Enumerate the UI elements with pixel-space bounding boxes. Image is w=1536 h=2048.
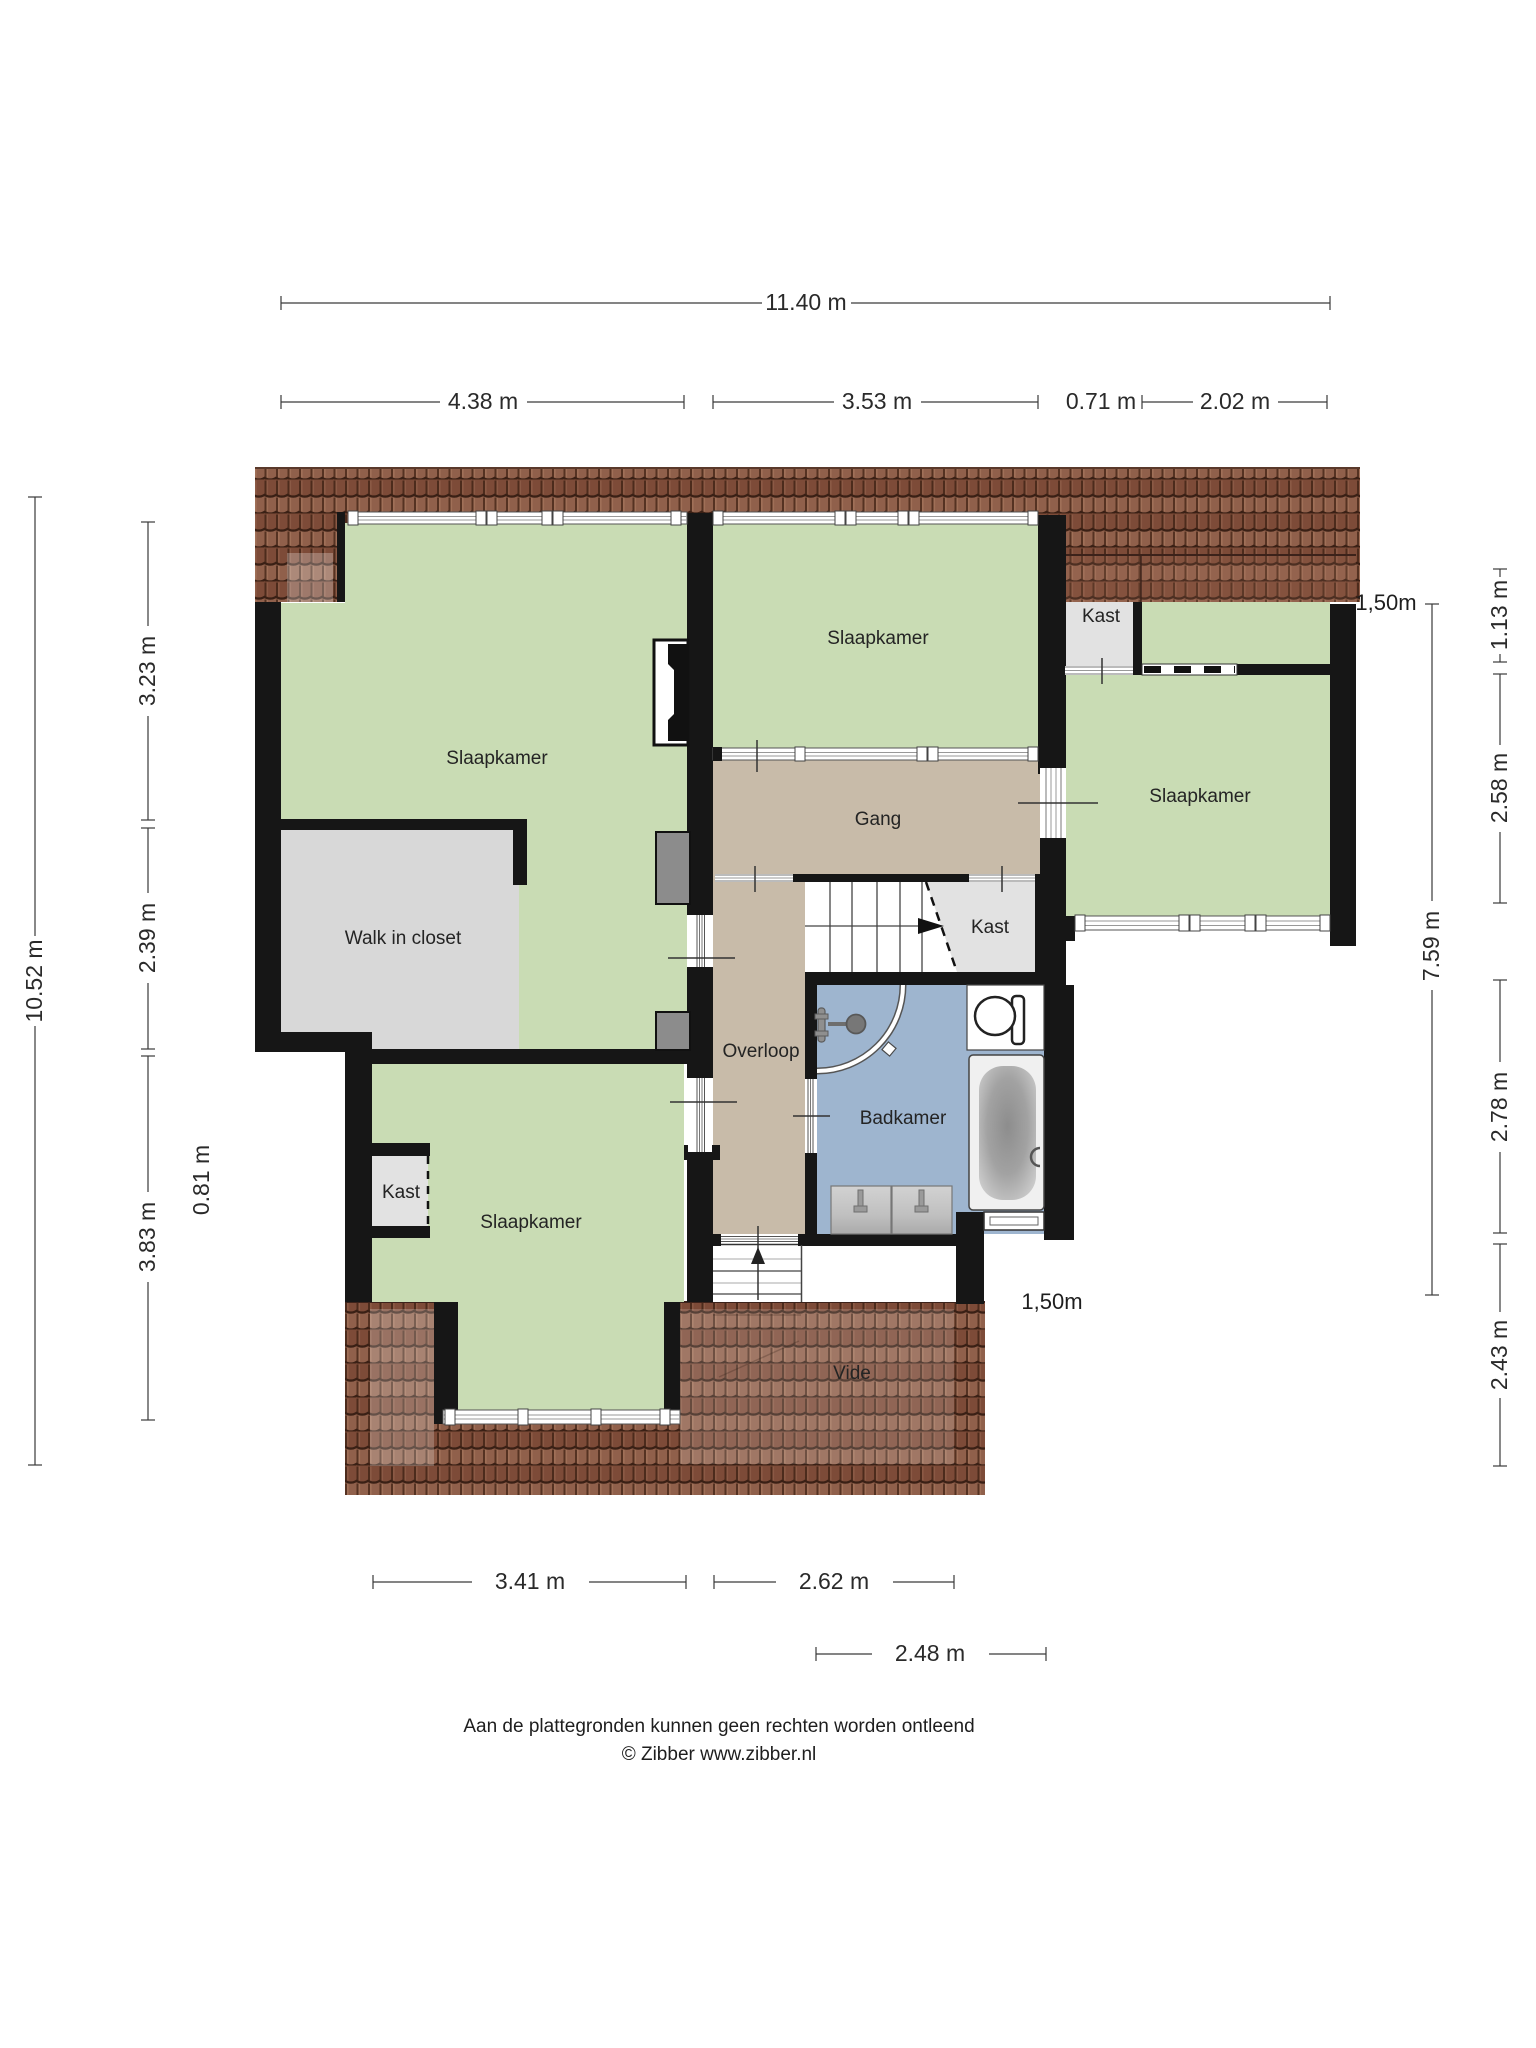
svg-text:1,50m: 1,50m xyxy=(1355,590,1416,615)
svg-text:2.39 m: 2.39 m xyxy=(134,903,160,973)
svg-text:7.59 m: 7.59 m xyxy=(1418,911,1444,981)
svg-text:Kast: Kast xyxy=(971,917,1010,938)
svg-text:3.23 m: 3.23 m xyxy=(134,636,160,706)
svg-text:Slaapkamer: Slaapkamer xyxy=(480,1212,582,1233)
svg-text:Kast: Kast xyxy=(1082,606,1121,627)
svg-text:2.02 m: 2.02 m xyxy=(1200,388,1270,414)
svg-text:Overloop: Overloop xyxy=(722,1041,799,1062)
svg-text:Slaapkamer: Slaapkamer xyxy=(446,748,548,769)
svg-text:Kast: Kast xyxy=(382,1182,421,1203)
svg-text:0.81 m: 0.81 m xyxy=(188,1145,214,1215)
svg-text:2.58 m: 2.58 m xyxy=(1486,753,1512,823)
svg-text:2.43 m: 2.43 m xyxy=(1486,1320,1512,1390)
svg-text:Vide: Vide xyxy=(833,1363,871,1384)
svg-text:Aan de plattegronden kunnen ge: Aan de plattegronden kunnen geen rechten… xyxy=(463,1716,974,1737)
svg-text:2.48 m: 2.48 m xyxy=(895,1640,965,1666)
svg-text:3.83 m: 3.83 m xyxy=(134,1202,160,1272)
svg-text:© Zibber www.zibber.nl: © Zibber www.zibber.nl xyxy=(622,1744,817,1765)
svg-text:10.52 m: 10.52 m xyxy=(21,939,47,1022)
svg-text:Gang: Gang xyxy=(855,809,901,830)
svg-text:1.13 m: 1.13 m xyxy=(1486,580,1512,650)
svg-text:2.62 m: 2.62 m xyxy=(799,1568,869,1594)
svg-text:Slaapkamer: Slaapkamer xyxy=(1149,786,1251,807)
svg-text:Badkamer: Badkamer xyxy=(860,1108,947,1129)
svg-text:4.38 m: 4.38 m xyxy=(448,388,518,414)
svg-text:Slaapkamer: Slaapkamer xyxy=(827,628,929,649)
svg-text:3.41 m: 3.41 m xyxy=(495,1568,565,1594)
svg-text:Walk in closet: Walk in closet xyxy=(345,928,462,949)
svg-text:1,50m: 1,50m xyxy=(1021,1289,1082,1314)
svg-text:2.78 m: 2.78 m xyxy=(1486,1072,1512,1142)
svg-text:11.40 m: 11.40 m xyxy=(765,289,846,315)
svg-text:3.53 m: 3.53 m xyxy=(842,388,912,414)
svg-text:0.71 m: 0.71 m xyxy=(1066,388,1136,414)
